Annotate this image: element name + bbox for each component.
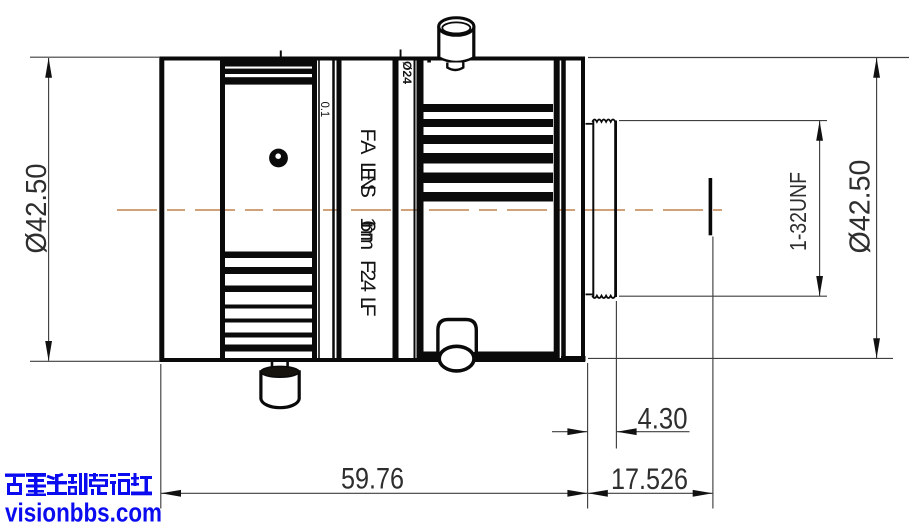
svg-text:LF: LF	[356, 297, 380, 317]
svg-text:Ø42.50: Ø42.50	[21, 164, 53, 254]
svg-text:F2.4: F2.4	[356, 260, 380, 292]
svg-text:17.526: 17.526	[611, 463, 688, 496]
svg-text:LENS: LENS	[356, 162, 380, 198]
svg-text:FA: FA	[356, 129, 380, 156]
svg-text:Ø24: Ø24	[400, 61, 412, 85]
svg-text:visionbbs.com: visionbbs.com	[5, 500, 162, 526]
svg-text:59.76: 59.76	[341, 463, 404, 496]
svg-text:0.1: 0.1	[318, 102, 332, 118]
svg-text:Ø42.50: Ø42.50	[845, 160, 877, 254]
svg-text:16mm: 16mm	[356, 217, 380, 250]
svg-text:4.30: 4.30	[638, 402, 688, 435]
svg-text:1-32UNF: 1-32UNF	[785, 172, 811, 251]
